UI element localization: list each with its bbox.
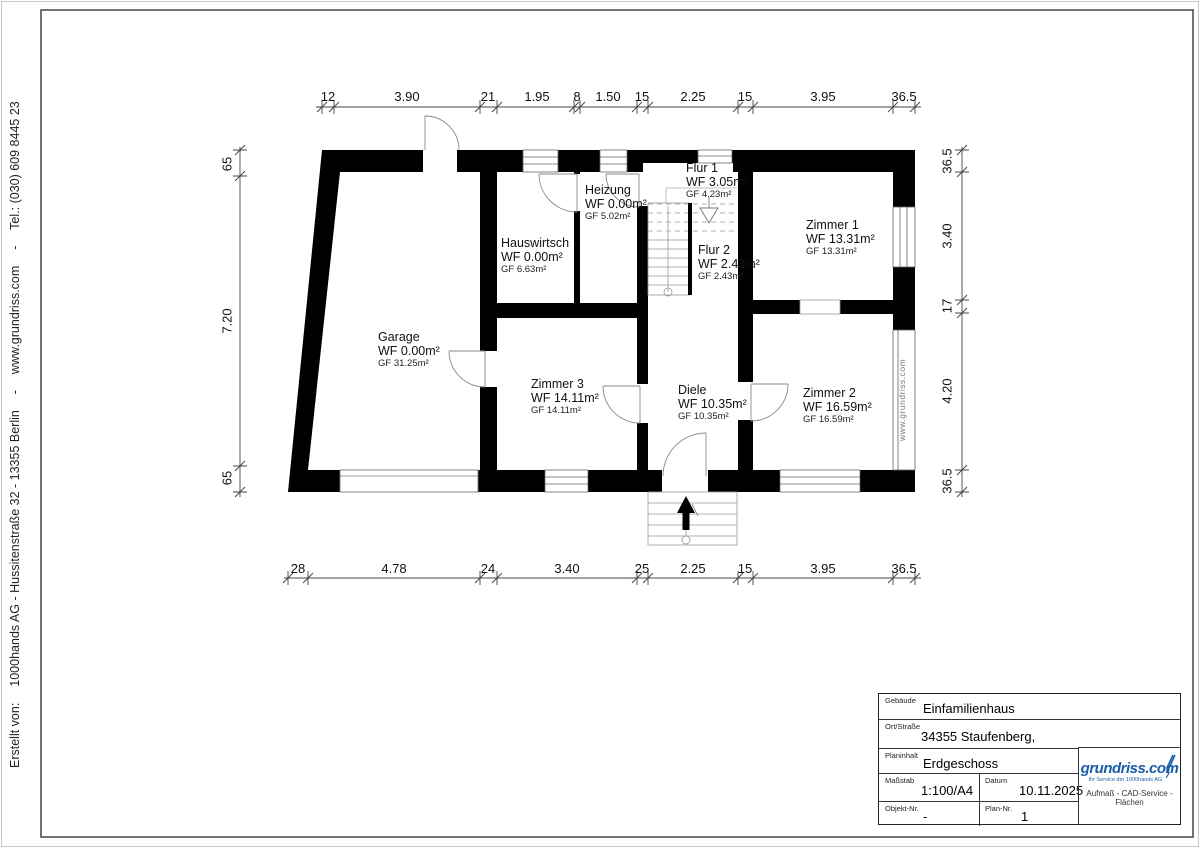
building-value: Einfamilienhaus: [923, 701, 1015, 716]
room-floor-area: GF 4.23m²: [686, 189, 748, 200]
object-number-value: -: [923, 809, 927, 824]
dim-left-0: 65: [220, 157, 235, 171]
logo-cell: grundriss.com Ihr Service der 1000hands …: [1078, 747, 1180, 824]
title-block-row-massstab-datum: Maßstab 1:100/A4 Datum 10.11.2025: [879, 773, 1078, 801]
dim-bottom-7: 3.95: [810, 561, 835, 576]
room-label-zimmer1: Zimmer 1 WF 13.31m² GF 13.31m²: [806, 218, 875, 257]
room-living-area: WF 0.00m²: [585, 197, 647, 211]
dim-bottom-4: 25: [635, 561, 649, 576]
room-name: Diele: [678, 383, 747, 397]
dim-top-5: 1.50: [595, 89, 620, 104]
room-label-zimmer2: Zimmer 2 WF 16.59m² GF 16.59m²: [803, 386, 872, 425]
address-value: 34355 Staufenberg,: [921, 729, 1035, 744]
title-block: Gebäude Einfamilienhaus Ort/Straße 34355…: [878, 693, 1181, 825]
room-name: Zimmer 1: [806, 218, 875, 232]
dim-top-7: 2.25: [680, 89, 705, 104]
dim-bottom-6: 15: [738, 561, 752, 576]
room-name: Flur 1: [686, 161, 748, 175]
room-floor-area: GF 2.43m²: [698, 271, 760, 282]
plan-number-value: 1: [1021, 809, 1028, 824]
dim-bottom-0: 28: [291, 561, 305, 576]
window-zimmer3-bottom: [545, 470, 588, 492]
room-floor-area: GF 5.02m²: [585, 211, 647, 222]
dim-right-1: 3.40: [940, 223, 955, 248]
dim-bottom-5: 2.25: [680, 561, 705, 576]
field-label: Objekt-Nr.: [885, 804, 919, 813]
dim-right-3: 4.20: [940, 378, 955, 403]
dim-top-2: 21: [481, 89, 495, 104]
cell-divider: [979, 802, 980, 826]
floor-plan-page: Erstellt von: 1000hands AG - Hussitenstr…: [0, 0, 1200, 848]
logo-tagline: Ihr Service der 1000hands AG: [1079, 777, 1172, 783]
room-label-hauswirtsch: Hauswirtsch WF 0.00m² GF 6.63m²: [501, 236, 569, 275]
room-living-area: WF 14.11m²: [531, 391, 599, 405]
room-floor-area: GF 6.63m²: [501, 264, 569, 275]
field-label: Gebäude: [885, 696, 916, 705]
room-living-area: WF 0.00m²: [378, 344, 440, 358]
room-floor-area: GF 16.59m²: [803, 414, 872, 425]
room-name: Hauswirtsch: [501, 236, 569, 250]
room-floor-area: GF 10.35m²: [678, 411, 747, 422]
entrance-steps: [648, 492, 737, 545]
title-block-row-ort: Ort/Straße 34355 Staufenberg,: [879, 719, 1180, 748]
room-living-area: WF 0.00m²: [501, 250, 569, 264]
dim-top-10: 36.5: [891, 89, 916, 104]
room-label-zimmer3: Zimmer 3 WF 14.11m² GF 14.11m²: [531, 377, 599, 416]
room-label-flur1: Flur 1 WF 3.05m² GF 4.23m²: [686, 161, 748, 200]
cell-divider: [979, 774, 980, 801]
dim-top-9: 3.95: [810, 89, 835, 104]
dim-top-8: 15: [738, 89, 752, 104]
room-floor-area: GF 13.31m²: [806, 246, 875, 257]
plan-content-value: Erdgeschoss: [923, 756, 998, 771]
door-garage-exterior: [425, 116, 459, 150]
dim-top-0: 12: [321, 89, 335, 104]
dim-right-0: 36.5: [940, 148, 955, 173]
watermark-text: www.grundriss.com: [897, 326, 915, 474]
dim-bottom-2: 24: [481, 561, 495, 576]
room-living-area: WF 10.35m²: [678, 397, 747, 411]
dim-left-2: 65: [220, 471, 235, 485]
window-zimmer2-bottom: [780, 470, 860, 492]
room-name: Garage: [378, 330, 440, 344]
room-floor-area: GF 14.11m²: [531, 405, 599, 416]
dim-right-4: 36.5: [940, 468, 955, 493]
room-living-area: WF 3.05m²: [686, 175, 748, 189]
field-label: Datum: [985, 776, 1007, 785]
room-name: Zimmer 2: [803, 386, 872, 400]
pen-icon: [1163, 754, 1177, 785]
date-value: 10.11.2025: [1019, 783, 1083, 798]
dim-bottom-3: 3.40: [554, 561, 579, 576]
entrance-opening: [662, 470, 708, 492]
field-label: Maßstab: [885, 776, 914, 785]
dim-right-2: 17: [940, 299, 955, 313]
room-name: Zimmer 3: [531, 377, 599, 391]
window-top-1: [523, 150, 558, 172]
title-block-row-objekt-plan: Objekt-Nr. - Plan-Nr. 1: [879, 801, 1078, 826]
room-label-diele: Diele WF 10.35m² GF 10.35m²: [678, 383, 747, 422]
room-label-flur2: Flur 2 WF 2.43m² GF 2.43m²: [698, 243, 760, 282]
dim-left-1: 7.20: [220, 308, 235, 333]
title-block-row-planinhalt: Planinhalt Erdgeschoss: [879, 748, 1078, 773]
dim-top-1: 3.90: [394, 89, 419, 104]
entry-arrow-shaft: [683, 511, 690, 530]
room-flur-diele: [648, 172, 738, 470]
room-floor-area: GF 31.25m²: [378, 358, 440, 369]
dim-top-3: 1.95: [524, 89, 549, 104]
dim-bottom-8: 36.5: [891, 561, 916, 576]
field-label: Plan-Nr.: [985, 804, 1012, 813]
room-living-area: WF 13.31m²: [806, 232, 875, 246]
title-block-row-gebaeude: Gebäude Einfamilienhaus: [879, 694, 1180, 719]
room-name: Flur 2: [698, 243, 760, 257]
field-label: Ort/Straße: [885, 722, 920, 731]
dim-top-4: 8: [573, 89, 580, 104]
dim-top-6: 15: [635, 89, 649, 104]
room-living-area: WF 2.43m²: [698, 257, 760, 271]
room-label-heizung: Heizung WF 0.00m² GF 5.02m²: [585, 183, 647, 222]
room-name: Heizung: [585, 183, 647, 197]
window-zimmer1-right: [893, 207, 915, 267]
logo-services: Aufmaß - CAD-Service - Flächen: [1079, 789, 1180, 807]
dim-bottom-1: 4.78: [381, 561, 406, 576]
room-living-area: WF 16.59m²: [803, 400, 872, 414]
credit-text: Erstellt von: 1000hands AG - Hussitenstr…: [8, 85, 34, 785]
room-label-garage: Garage WF 0.00m² GF 31.25m²: [378, 330, 440, 369]
field-label: Planinhalt: [885, 751, 918, 760]
scale-value: 1:100/A4: [921, 783, 973, 798]
window-top-2: [600, 150, 627, 172]
